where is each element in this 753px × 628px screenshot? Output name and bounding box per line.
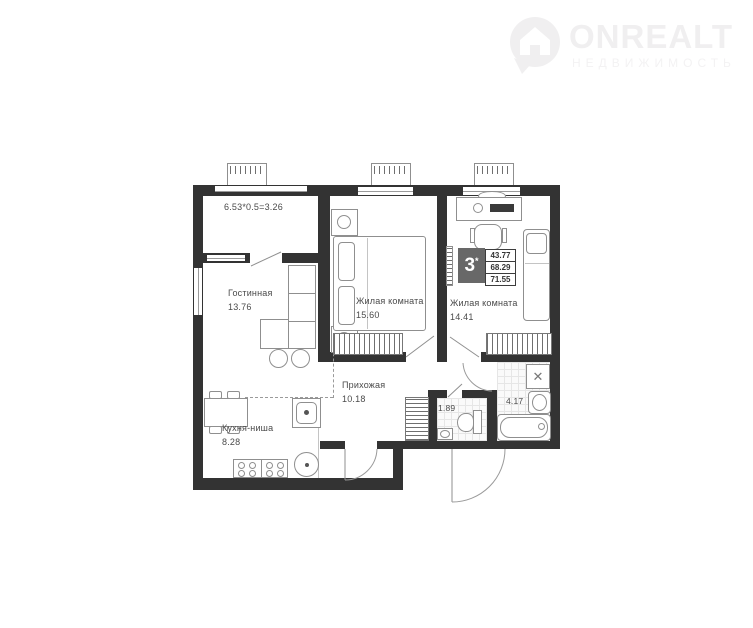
wc-label: 1.89 [438, 403, 455, 414]
room-area: 4.17 [506, 396, 523, 407]
room-area: 10.18 [342, 392, 385, 406]
main-entry-door-arc [452, 449, 505, 502]
hallway-label: Прихожая 10.18 [342, 378, 385, 406]
room-area: 14.41 [450, 310, 518, 324]
room-name: Жилая комната [450, 296, 518, 310]
room-name: Прихожая [342, 378, 385, 392]
entry-door-arc [345, 449, 377, 480]
bedroom2-label: Жилая комната 14.41 [450, 296, 518, 324]
bedroom1-label: Жилая комната 15.60 [356, 294, 424, 322]
room-name: Кухня-ниша [222, 421, 273, 435]
balcony-formula: 6.53*0.5=3.26 [224, 200, 283, 214]
bathroom-door-arc [463, 363, 492, 391]
bathroom-label: 4.17 [506, 396, 523, 407]
balcony-door-leaf [251, 252, 281, 266]
room-area: 1.89 [438, 403, 455, 414]
room-area: 13.76 [228, 300, 273, 314]
bedroom2-door-leaf [450, 337, 479, 357]
balcony-label: 6.53*0.5=3.26 [224, 200, 283, 214]
bedroom1-door-leaf [406, 336, 434, 357]
room-name: Гостинная [228, 286, 273, 300]
room-area: 8.28 [222, 435, 273, 449]
living-room-label: Гостинная 13.76 [228, 286, 273, 314]
floorplan-canvas: ONREALT НЕДВИЖИМОСТЬ [0, 0, 753, 628]
wc-door-leaf [448, 384, 462, 397]
kitchen-label: Кухня-ниша 8.28 [222, 421, 273, 449]
room-name: Жилая комната [356, 294, 424, 308]
room-area: 15.60 [356, 308, 424, 322]
